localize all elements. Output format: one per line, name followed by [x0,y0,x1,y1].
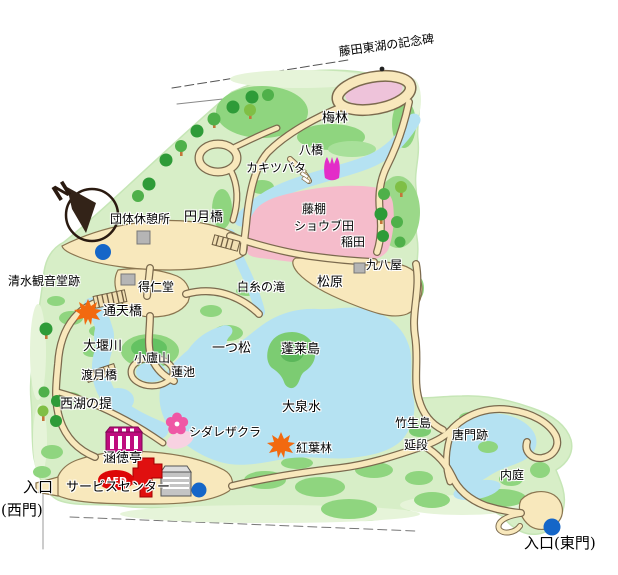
label-koyorin: 紅葉林 [296,442,332,456]
label-yatsuhashi: 八橋 [299,144,323,158]
label-hitotsumatsu: 一つ松 [212,342,251,357]
label-kakitsubata: カキツバタ [246,162,306,176]
group-rest-house-icon [137,231,150,244]
label-seiko-no-tsutsumi: 西湖の提 [60,398,112,413]
label-shimizu-kannondo-ato: 清水観音堂跡 [8,275,80,289]
label-kantokutei: 涵徳亭 [103,452,142,467]
label-entrance-west-line2: (西門) [1,502,43,519]
label-nobedan: 延段 [404,439,428,453]
park-map: AED N 藤田東湖の記念碑梅林八橋カキツバタ藤棚ショウブ田稲田団体休憩所円月橋… [0,0,618,575]
blue-dot-marker [95,244,111,260]
label-shorozan: 小廬山 [134,352,170,366]
label-fujidana: 藤棚 [302,203,326,217]
label-karamon-ato: 唐門跡 [452,429,488,443]
label-entrance-east: 入口(東門) [524,535,596,552]
naitei-islet [478,441,498,453]
kantokutei-teahouse-icon [106,427,142,453]
label-daisensui: 大泉水 [282,401,321,416]
label-chikubushima: 竹生島 [395,417,431,431]
label-shobuda: ショウブ田 [294,220,354,234]
label-togetsukyo: 渡月橋 [81,369,117,383]
label-hasuike: 蓮池 [171,366,195,380]
label-bairin: 梅林 [322,112,348,127]
label-naitei: 内庭 [500,469,524,483]
kuhachiya-hut-icon [354,263,365,273]
blue-dot-marker [544,519,561,536]
label-engetsukyo: 円月橋 [184,211,223,226]
label-kuhachiya: 九八屋 [366,259,402,273]
label-shidarezakura: シダレザクラ [189,426,261,440]
monument-dot [380,67,385,72]
label-tsutenkyo: 通天橋 [103,305,142,320]
label-service-center: サービスセンター [66,481,170,496]
label-shiraito-no-taki: 白糸の滝 [237,281,285,295]
label-oigawa: 大堰川 [83,340,122,355]
label-horaijima: 蓬莱島 [281,343,320,358]
label-dantai-kyukeijo: 団体休憩所 [110,213,170,227]
label-entrance-west-line1: 入口 [23,479,53,496]
label-tokujindo: 得仁堂 [138,281,174,295]
tokujindo-hall-icon [121,274,135,285]
label-matsubara: 松原 [317,276,343,291]
blue-dot-marker [192,483,207,498]
kakitsubata-tulip-icon [324,157,340,180]
label-inada: 稲田 [341,236,365,250]
